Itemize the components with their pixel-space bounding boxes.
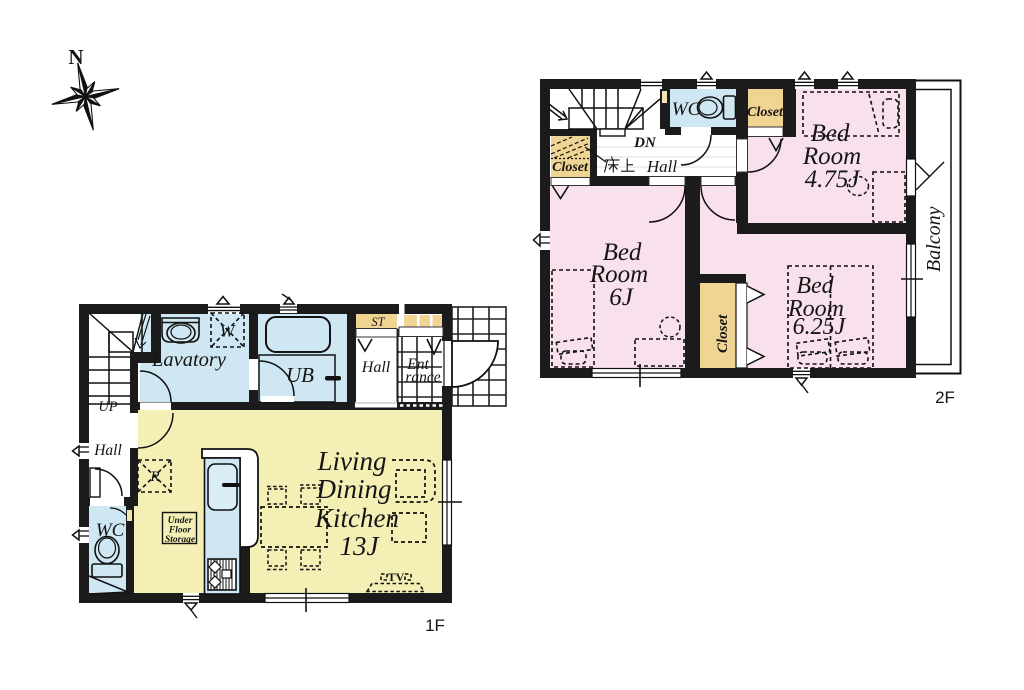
svg-text:Balcony: Balcony	[923, 206, 945, 272]
svg-text:Kitchen: Kitchen	[314, 503, 399, 533]
svg-text:Hall: Hall	[93, 442, 122, 459]
svg-text:1F: 1F	[425, 616, 445, 635]
svg-text:13J: 13J	[340, 531, 381, 561]
svg-text:UB: UB	[286, 363, 314, 387]
svg-text:Closet: Closet	[747, 105, 784, 120]
svg-text:Floor: Floor	[168, 526, 191, 536]
svg-text:WC: WC	[672, 99, 701, 120]
svg-text:Closet: Closet	[715, 314, 731, 353]
svg-text:Living: Living	[316, 446, 386, 476]
svg-text:Dining: Dining	[315, 474, 391, 504]
svg-text:6J: 6J	[609, 284, 635, 311]
svg-text:UP: UP	[98, 399, 117, 415]
svg-text:ST: ST	[371, 315, 385, 329]
svg-text:DN: DN	[633, 135, 657, 151]
svg-text:R: R	[149, 469, 159, 485]
svg-text:6.25J: 6.25J	[793, 314, 847, 340]
svg-text:2F: 2F	[935, 388, 955, 407]
svg-text:WC: WC	[96, 520, 125, 541]
svg-text:N: N	[68, 45, 83, 69]
svg-text:Lavatory: Lavatory	[151, 349, 227, 371]
svg-text:4.75J: 4.75J	[805, 166, 862, 193]
svg-text:Under: Under	[168, 516, 193, 526]
svg-text:Hall: Hall	[361, 359, 391, 376]
svg-text:Storage: Storage	[165, 535, 196, 545]
svg-text:Closet: Closet	[552, 160, 589, 175]
svg-text:TV: TV	[388, 570, 405, 584]
svg-text:rance: rance	[405, 369, 440, 386]
svg-text:W: W	[220, 321, 236, 341]
svg-text:Hall: Hall	[646, 157, 678, 176]
